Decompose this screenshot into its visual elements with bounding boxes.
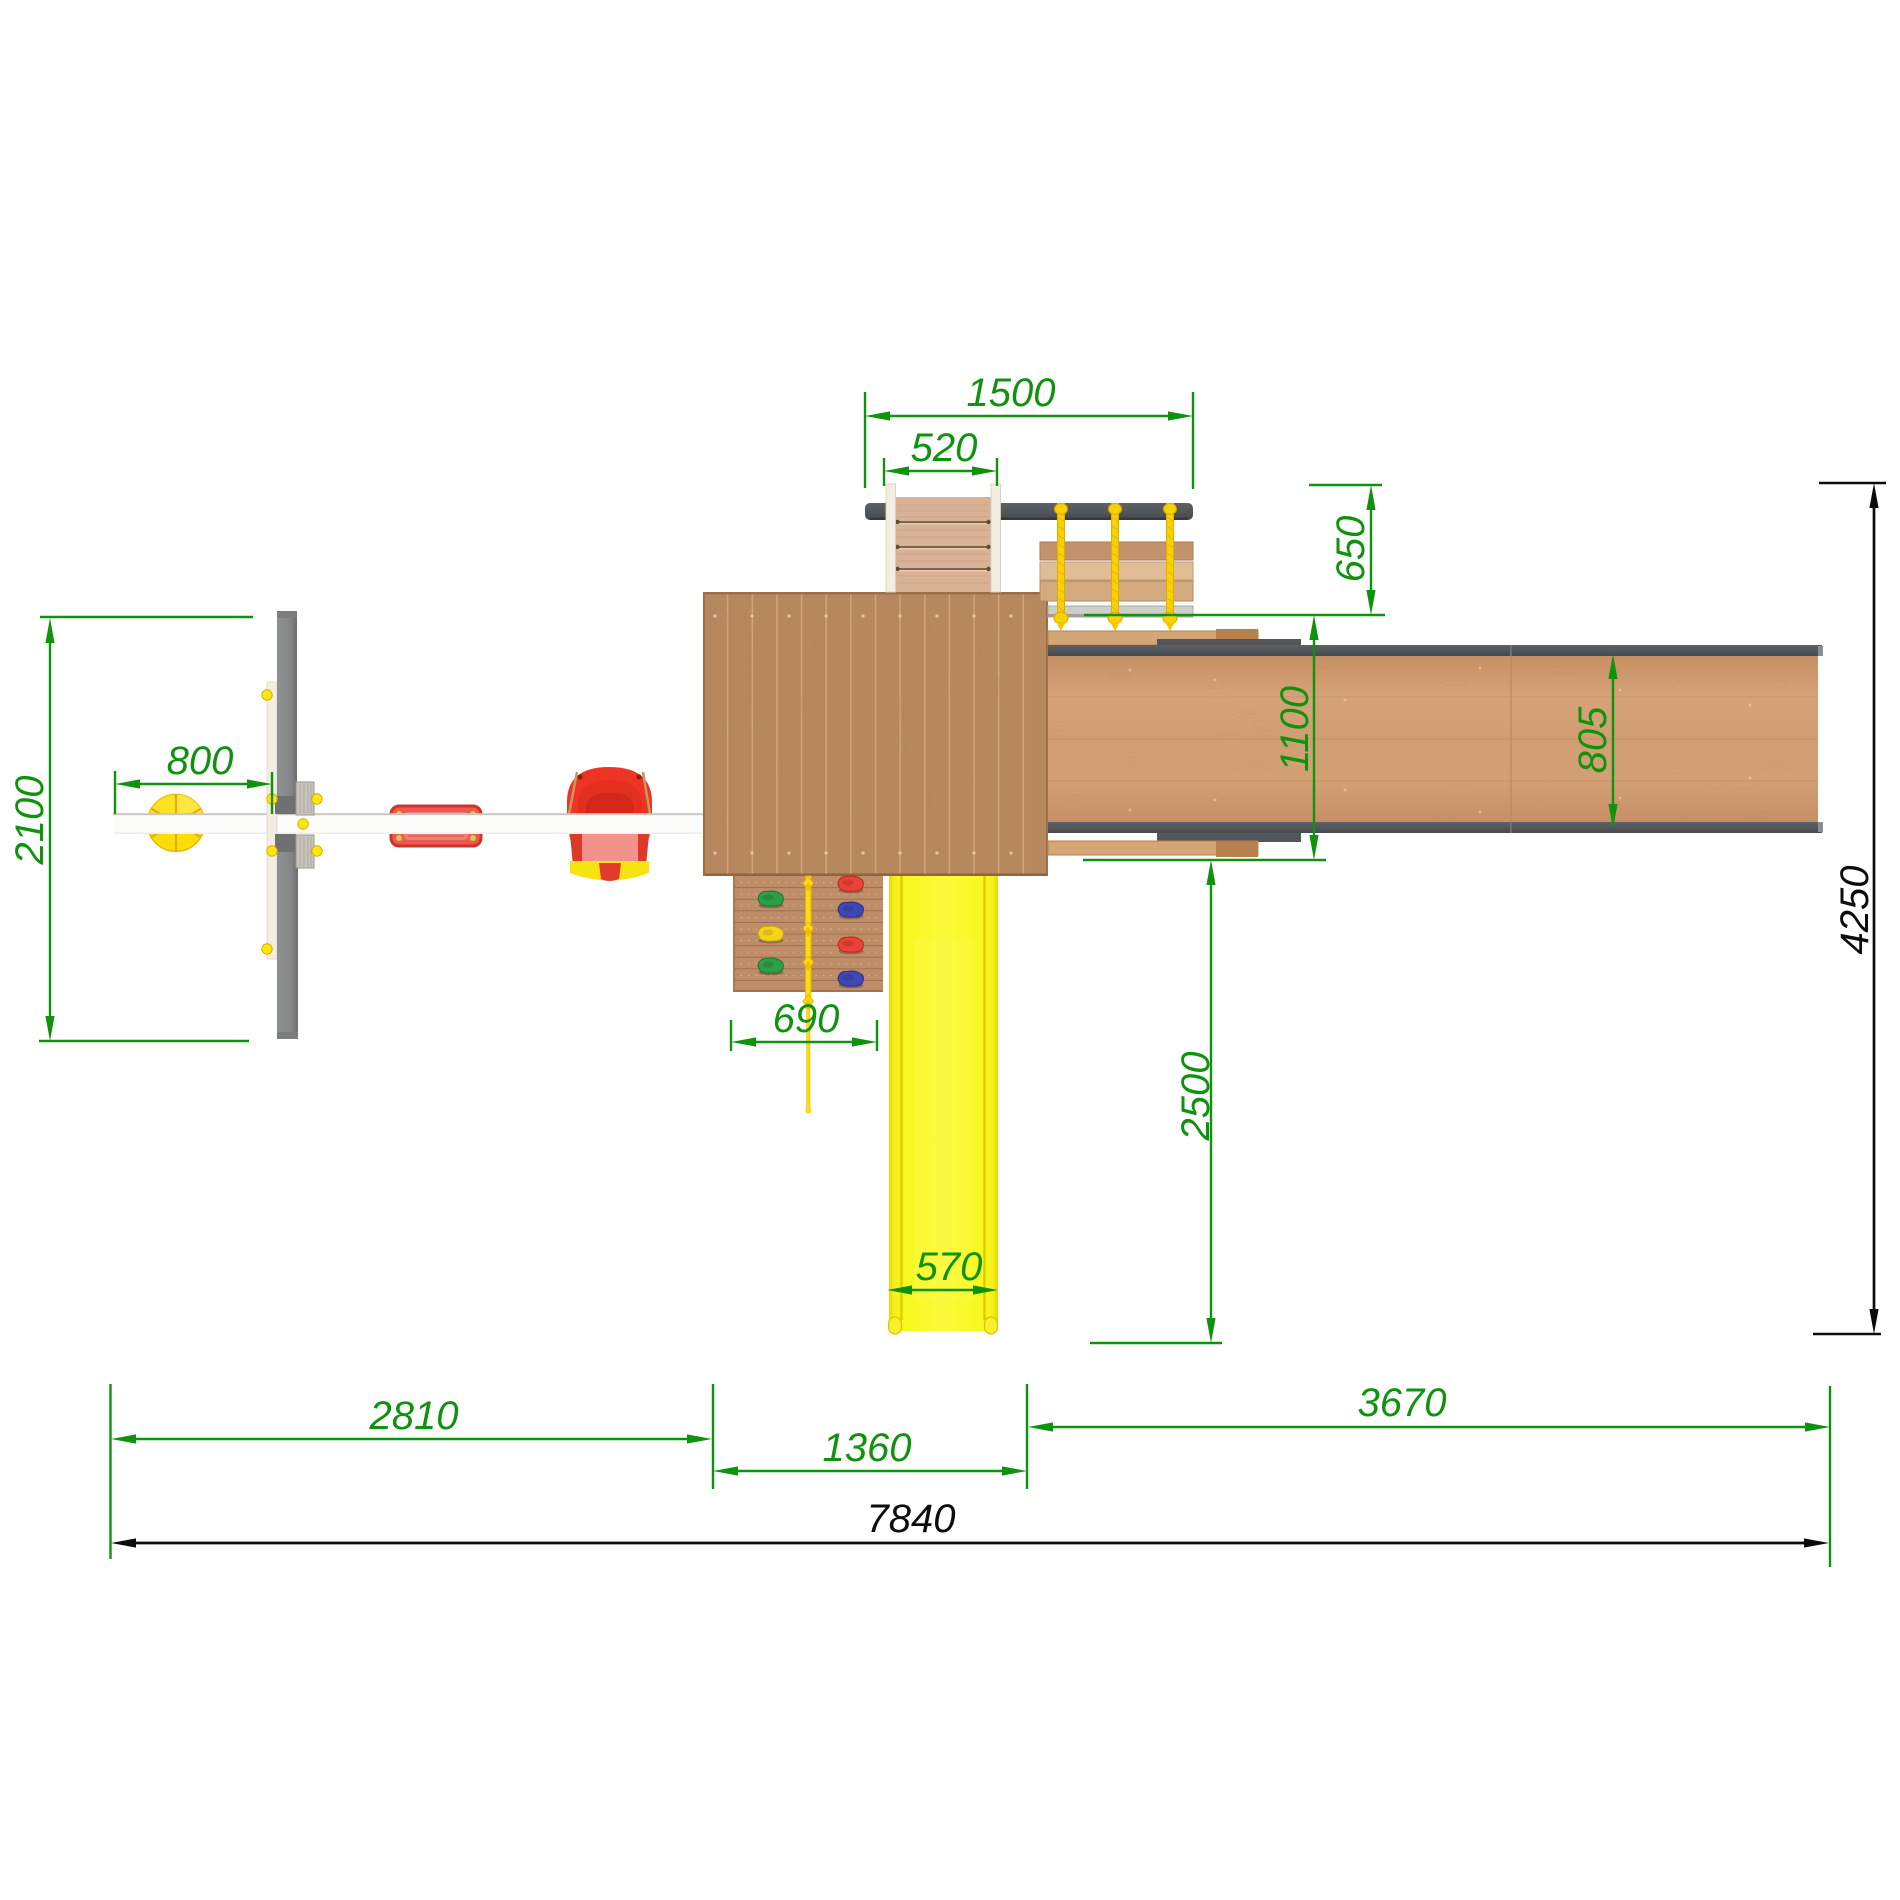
svg-text:805: 805 bbox=[1571, 706, 1615, 773]
svg-text:1360: 1360 bbox=[823, 1426, 912, 1470]
svg-text:2500: 2500 bbox=[1174, 1052, 1218, 1142]
svg-text:650: 650 bbox=[1329, 516, 1373, 583]
svg-text:2100: 2100 bbox=[8, 776, 52, 866]
svg-text:2810: 2810 bbox=[369, 1394, 459, 1438]
svg-text:1500: 1500 bbox=[967, 371, 1056, 415]
svg-text:7840: 7840 bbox=[867, 1497, 956, 1541]
svg-text:570: 570 bbox=[916, 1245, 983, 1289]
svg-text:690: 690 bbox=[773, 997, 840, 1041]
svg-text:800: 800 bbox=[167, 739, 234, 783]
svg-text:1100: 1100 bbox=[1273, 686, 1317, 772]
svg-text:4250: 4250 bbox=[1833, 866, 1877, 955]
svg-text:520: 520 bbox=[911, 426, 978, 470]
svg-text:3670: 3670 bbox=[1358, 1381, 1447, 1425]
